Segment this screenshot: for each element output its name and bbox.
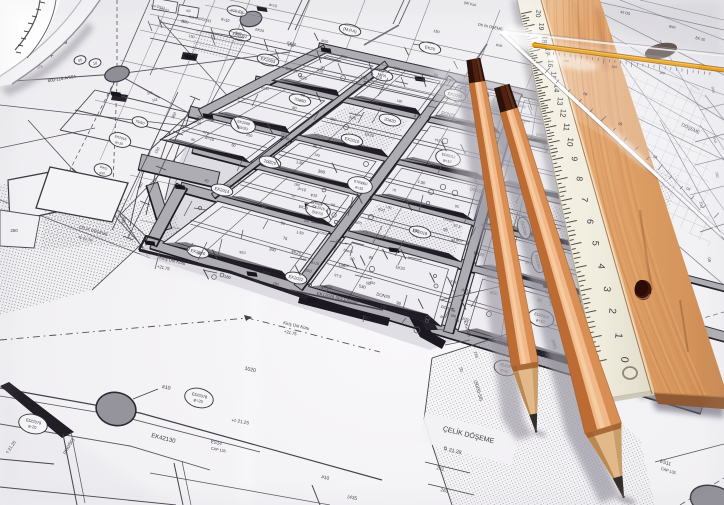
svg-text:18: 18 bbox=[93, 61, 98, 66]
svg-text:05: 05 bbox=[78, 58, 83, 63]
svg-text:3: 3 bbox=[601, 286, 613, 293]
svg-text:11: 11 bbox=[562, 122, 572, 132]
svg-text:6: 6 bbox=[585, 218, 595, 224]
svg-text:19: 19 bbox=[537, 22, 545, 30]
svg-text:10: 10 bbox=[565, 137, 575, 147]
svg-text:5: 5 bbox=[590, 240, 600, 246]
